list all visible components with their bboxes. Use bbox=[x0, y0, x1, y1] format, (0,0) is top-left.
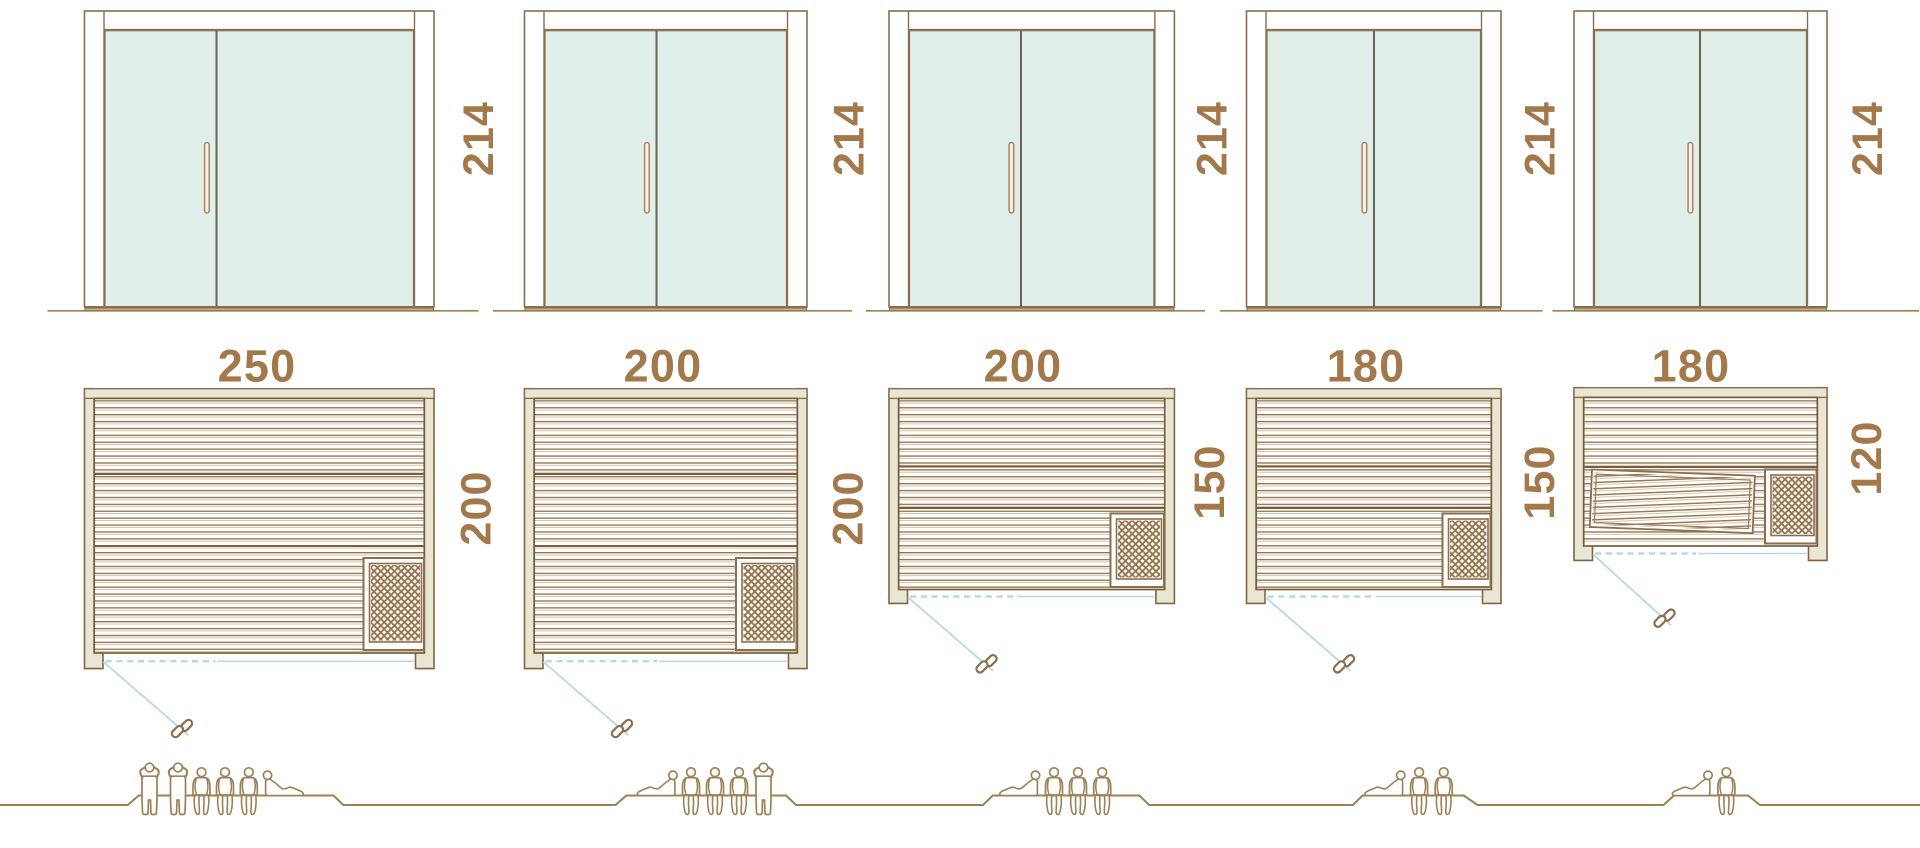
svg-text:214: 214 bbox=[826, 101, 874, 176]
svg-text:150: 150 bbox=[1516, 444, 1564, 519]
svg-text:200: 200 bbox=[624, 341, 703, 392]
svg-text:214: 214 bbox=[1844, 101, 1892, 176]
svg-text:214: 214 bbox=[1189, 101, 1237, 176]
svg-text:214: 214 bbox=[1517, 101, 1565, 176]
svg-text:200: 200 bbox=[453, 470, 501, 545]
svg-text:250: 250 bbox=[218, 341, 297, 392]
svg-text:180: 180 bbox=[1327, 341, 1406, 392]
svg-text:180: 180 bbox=[1652, 341, 1731, 392]
svg-text:120: 120 bbox=[1843, 420, 1891, 495]
svg-text:214: 214 bbox=[455, 101, 503, 176]
svg-text:150: 150 bbox=[1186, 444, 1234, 519]
svg-text:200: 200 bbox=[825, 470, 873, 545]
svg-text:200: 200 bbox=[984, 341, 1063, 392]
